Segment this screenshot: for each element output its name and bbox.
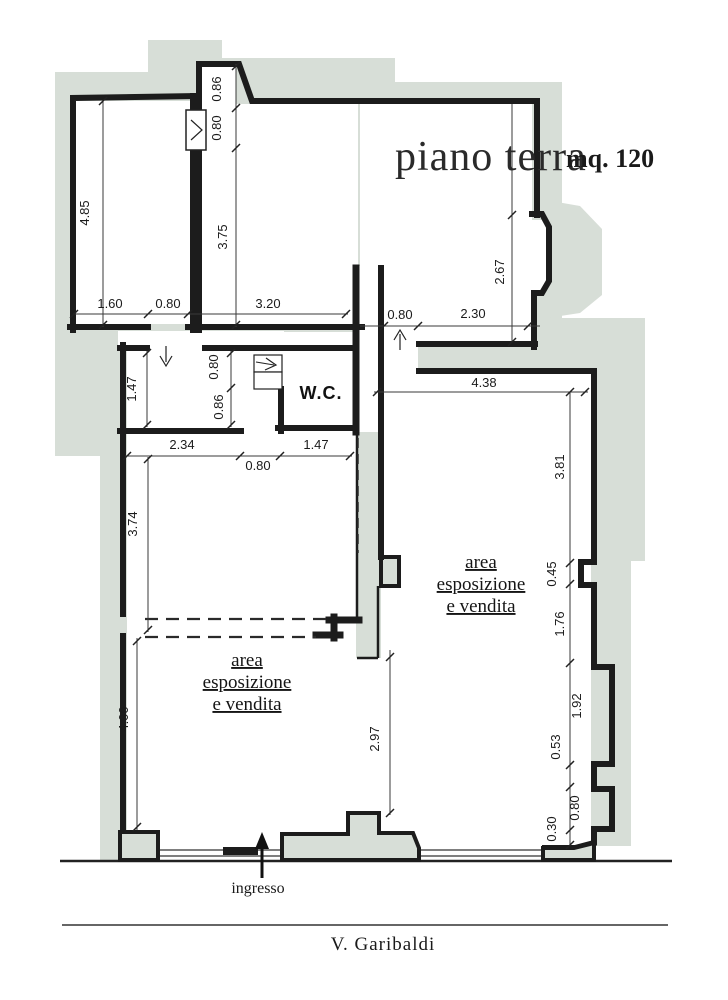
dim-label-e-r7: 0.30	[544, 816, 559, 841]
dim-label-d-door: 0.80	[245, 458, 270, 473]
sales-area-left-interior	[127, 620, 543, 848]
room-top-left-interior	[76, 101, 190, 324]
dim-label-hall-v2: 0.86	[211, 394, 226, 419]
entrance-door-leaf	[223, 847, 258, 855]
dim-label-a-door: 0.80	[155, 296, 180, 311]
dim-label-b-nook: 0.86	[209, 76, 224, 101]
sales-area-right-label-line1: area	[465, 552, 497, 573]
dim-label-e-r6: 0.80	[567, 795, 582, 820]
dim-label-e-top: 4.38	[471, 375, 496, 390]
sales-area-right-label-line3: e vendita	[446, 596, 516, 617]
floor-plan-drawing: 1.60 0.80 3.20 0.80 2.30 4.38 2.34 1.47 …	[0, 0, 728, 1000]
pillar	[381, 557, 399, 586]
dim-label-hall-v1: 0.80	[206, 354, 221, 379]
dim-label-b-width: 3.20	[255, 296, 280, 311]
room-top-middle-interior	[202, 104, 358, 324]
dim-label-e-r1: 3.81	[552, 454, 567, 479]
wc-room-label: W.C.	[300, 383, 343, 403]
dim-label-d-w1: 2.34	[169, 437, 194, 452]
street-label: V. Garibaldi	[331, 934, 436, 955]
page-title-area: mq. 120	[566, 144, 654, 173]
entrance-label: ingresso	[231, 880, 284, 897]
room-interiors	[76, 67, 591, 848]
dim-label-e-r3: 1.76	[552, 611, 567, 636]
dim-label-b-height: 3.75	[215, 224, 230, 249]
dim-label-ab-door: 0.80	[209, 115, 224, 140]
room-middle-left-interior	[127, 435, 357, 618]
dim-label-e-r4: 1.92	[569, 693, 584, 718]
dim-label-c-bay: 2.67	[492, 259, 507, 284]
dim-label-c-width: 2.30	[460, 306, 485, 321]
dim-label-a-height: 4.85	[77, 200, 92, 225]
dim-label-a-w1: 1.60	[97, 296, 122, 311]
dim-label-e-r5: 0.53	[548, 734, 563, 759]
sales-area-left-label-line3: e vendita	[212, 694, 282, 715]
door-icon	[186, 110, 206, 150]
dim-label-f-height: 4.00	[116, 706, 131, 731]
dim-label-ef-open: 2.97	[367, 726, 382, 751]
dim-label-e-r2: 0.45	[544, 561, 559, 586]
sales-area-left-label-line1: area	[231, 650, 263, 671]
sales-area-left-label-line2: esposizione	[203, 672, 292, 693]
dim-label-d-w2: 1.47	[303, 437, 328, 452]
page-title: piano terra	[395, 134, 587, 180]
dim-label-hall-room: 1.47	[124, 376, 139, 401]
dim-label-d-height: 3.74	[125, 511, 140, 536]
dim-label-c-pass: 0.80	[387, 307, 412, 322]
floor-plan-page: 1.60 0.80 3.20 0.80 2.30 4.38 2.34 1.47 …	[0, 0, 728, 1000]
sales-area-right-label-line2: esposizione	[437, 574, 526, 595]
